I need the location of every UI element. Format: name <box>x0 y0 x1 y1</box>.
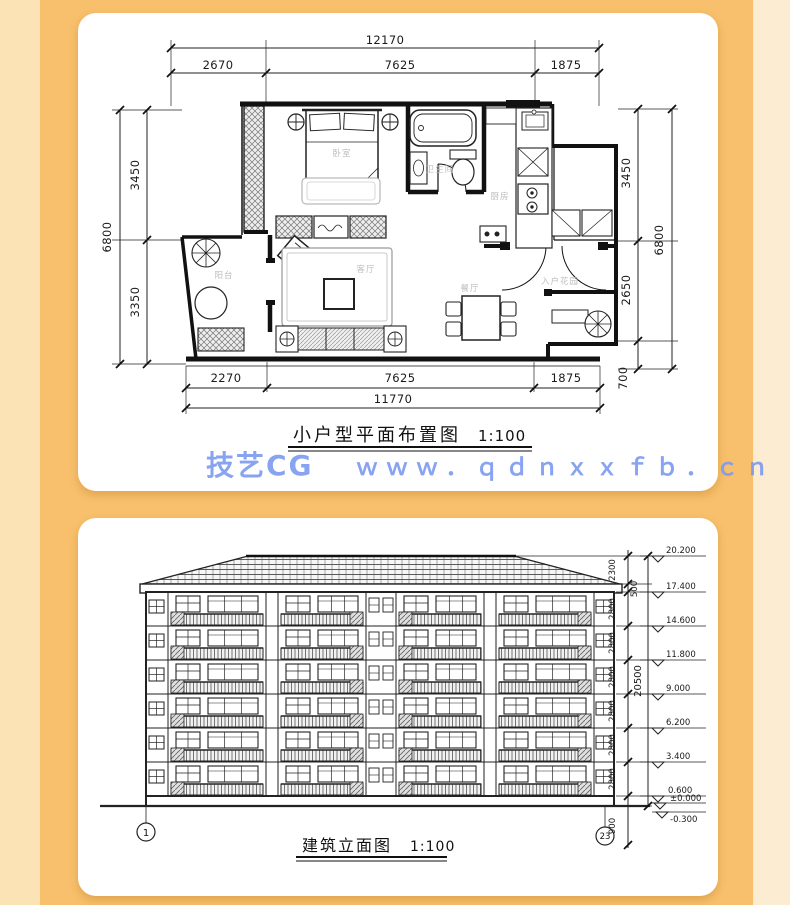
sofa-cushion <box>326 328 354 350</box>
floor-plan-title: 小户型平面布置图 <box>293 425 461 446</box>
dining-chair <box>501 302 516 316</box>
level-1: 17.400 <box>666 582 696 592</box>
elevation-title-underline <box>296 857 447 861</box>
dim-top-3: 1875 <box>551 58 582 72</box>
dim-bottom-3: 1875 <box>551 371 582 385</box>
elev-dim-4: 2800 <box>608 666 618 688</box>
dining-furniture <box>446 296 516 340</box>
floor-plan-scale: 1:100 <box>478 427 526 445</box>
dim-right-total: 6800 <box>652 225 666 256</box>
level-0: 20.200 <box>666 546 696 556</box>
level-9: -0.300 <box>670 815 697 825</box>
level-2: 14.600 <box>666 616 696 626</box>
elev-dim-6: 2800 <box>608 734 618 756</box>
level-5: 6.200 <box>666 718 690 728</box>
sofa-cushion <box>298 328 326 350</box>
dim-top-total: 12170 <box>366 33 405 47</box>
dining-table <box>462 296 500 340</box>
toilet-tank <box>450 150 476 159</box>
room-label-balcony: 阳台 <box>214 270 233 281</box>
level-4: 9.000 <box>666 684 690 694</box>
kitchen-island <box>480 226 506 242</box>
roof <box>140 556 622 593</box>
elev-dim-8: 900 <box>608 818 618 834</box>
elevation-card: 1 23 2300 50 <box>78 518 718 896</box>
elev-dim-3: 2800 <box>608 632 618 654</box>
dim-top-1: 2670 <box>203 58 234 72</box>
entry-furniture <box>552 210 612 337</box>
elevation-title: 建筑立面图 <box>302 836 392 855</box>
living-furniture <box>276 248 406 352</box>
coffee-table <box>324 279 354 309</box>
dining-chair <box>446 302 461 316</box>
plan-dim-bottom <box>186 362 600 414</box>
dim-left-1: 3450 <box>128 160 142 191</box>
elev-dim-5: 2800 <box>608 700 618 722</box>
room-label-dining: 餐厅 <box>460 284 479 294</box>
balcony-cabinet <box>198 328 244 351</box>
elev-dim-7: 2800 <box>608 768 618 790</box>
shoe-cabinet <box>552 310 588 323</box>
level-3: 11.800 <box>666 650 696 660</box>
dim-right-3: 700 <box>616 366 630 389</box>
watermark: 技艺CG ｗｗｗ．ｑｄｎｘｘｆｂ．ｃｎ <box>206 444 776 484</box>
dim-left-2: 3350 <box>128 287 142 318</box>
floor-plan-drawing: 12170 2670 7625 1875 6800 3450 3350 <box>78 13 718 491</box>
room-label-entry: 入户花园 <box>541 276 579 287</box>
balcony-furniture <box>192 239 244 351</box>
kitchen-cabinet <box>486 108 516 124</box>
dim-top-2: 7625 <box>385 58 416 72</box>
elev-dim-1: 500 <box>630 581 640 597</box>
elevation-scale: 1:100 <box>410 839 455 855</box>
building-base <box>100 796 650 806</box>
page-background: 12170 2670 7625 1875 6800 3450 3350 <box>0 0 790 905</box>
dining-chair <box>446 322 461 336</box>
dim-left-total: 6800 <box>100 222 114 253</box>
kitchen-fixtures <box>480 108 552 248</box>
level-6: 3.400 <box>666 752 690 762</box>
plan-dim-right <box>618 109 678 369</box>
dining-chair <box>501 322 516 336</box>
room-label-bedroom: 卧室 <box>332 148 351 159</box>
sofa-cushion <box>354 328 384 350</box>
dim-bottom-2: 7625 <box>385 371 416 385</box>
room-label-kitchen: 厨房 <box>490 191 509 202</box>
round-table <box>195 287 227 319</box>
elevation-drawing: 1 23 2300 50 <box>78 518 718 896</box>
level-8: ±0.000 <box>670 794 701 804</box>
elev-dim-total: 20500 <box>633 665 644 697</box>
dim-bottom-total: 11770 <box>374 392 413 406</box>
left-margin-strip <box>0 0 40 905</box>
axis-marker-1-label: 1 <box>143 828 149 839</box>
dim-bottom-1: 2270 <box>211 371 242 385</box>
wardrobe <box>350 216 386 238</box>
floor-plan-card: 12170 2670 7625 1875 6800 3450 3350 <box>78 13 718 491</box>
watermark-url: ｗｗｗ．ｑｄｎｘｘｆｂ．ｃｎ <box>356 448 776 482</box>
toilet <box>452 159 474 185</box>
dim-right-2: 2650 <box>619 275 633 306</box>
watermark-brand: 技艺CG <box>206 444 314 484</box>
wardrobe <box>276 216 312 238</box>
room-label-bath: 卫生间 <box>426 164 455 175</box>
dim-right-1: 3450 <box>619 158 633 189</box>
room-label-living: 客厅 <box>356 264 375 275</box>
elev-dim-0: 2300 <box>608 559 618 581</box>
elev-dim-2: 2800 <box>608 598 618 620</box>
